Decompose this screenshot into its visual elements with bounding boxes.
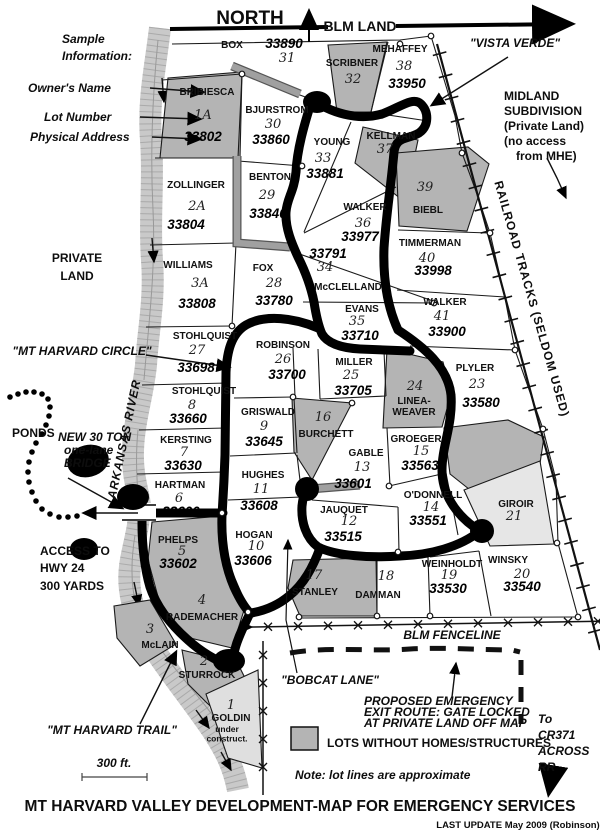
bridge-line3: BRIDGE bbox=[64, 456, 112, 470]
lot-physical-address: 33608 bbox=[240, 498, 278, 513]
lot-owner-name: ZOLLINGER bbox=[167, 180, 226, 191]
lot-number: 32 bbox=[345, 72, 362, 87]
lot-owner-name: BENTON bbox=[249, 172, 291, 183]
blm-land-label: BLM LAND bbox=[323, 18, 396, 34]
lot-number: 26 bbox=[274, 352, 292, 367]
lot-owner-name: BURCHETT bbox=[299, 429, 354, 440]
lot-number: 38 bbox=[396, 59, 413, 74]
scale-label: 300 ft. bbox=[97, 756, 132, 770]
private-land-line1: PRIVATE bbox=[52, 251, 102, 265]
lot-physical-address: 33705 bbox=[334, 383, 372, 398]
access-line1: ACCESS TO bbox=[40, 544, 110, 558]
lot-number: 10 bbox=[248, 539, 265, 554]
lot-physical-address: 33808 bbox=[178, 296, 216, 311]
cr371-line1: To bbox=[538, 712, 552, 726]
midland-line1: MIDLAND bbox=[504, 89, 560, 103]
lot-number: 15 bbox=[413, 444, 430, 459]
lot-number: 30 bbox=[265, 117, 282, 132]
lot-number: 9 bbox=[260, 419, 268, 434]
lot-number: 24 bbox=[406, 379, 424, 394]
lot-corner-marker bbox=[386, 483, 392, 489]
lot-number: 39 bbox=[417, 180, 434, 195]
ponds-label: PONDS bbox=[12, 426, 55, 440]
lot-number: 1A bbox=[194, 108, 212, 123]
lot-owner-name: HUGHES bbox=[242, 470, 285, 481]
lot-physical-address: 33791 bbox=[309, 246, 347, 261]
sample-heading2: Information: bbox=[62, 49, 132, 63]
bobcat-lane-label: "BOBCAT LANE" bbox=[281, 673, 379, 687]
lot-number: 18 bbox=[378, 569, 395, 584]
lot-owner-name: KELLMAN bbox=[367, 131, 416, 142]
lot-corner-marker bbox=[554, 540, 560, 546]
lot-owner-name: MILLER bbox=[335, 357, 373, 368]
lot-corner-marker bbox=[245, 609, 251, 615]
legend-gray-swatch bbox=[291, 727, 318, 750]
lot-number: 33 bbox=[315, 151, 332, 166]
lot-corner-marker bbox=[219, 510, 225, 516]
lot-corner-marker bbox=[540, 426, 546, 432]
mt-harvard-circle-label: "MT HARVARD CIRCLE" bbox=[12, 344, 151, 358]
lot-corner-marker bbox=[487, 230, 493, 236]
lot-owner-name: GABLE bbox=[349, 448, 384, 459]
cr371-line3: ACROSS bbox=[537, 744, 589, 758]
mt-harvard-map: NORTH BLM LAND Sample Information: Owner… bbox=[0, 0, 600, 840]
lot-physical-address: 33698 bbox=[177, 360, 215, 375]
access-line3: 300 YARDS bbox=[40, 579, 104, 593]
lot-physical-address: 33530 bbox=[429, 581, 467, 596]
map-page: NORTH BLM LAND Sample Information: Owner… bbox=[0, 0, 600, 840]
lot-physical-address: 33802 bbox=[184, 129, 222, 144]
map-title: MT HARVARD VALLEY DEVELOPMENT-MAP FOR EM… bbox=[25, 798, 576, 815]
midland-line4: (no access bbox=[504, 134, 566, 148]
lot-number: 35 bbox=[349, 314, 366, 329]
lot-number: 37 bbox=[377, 142, 394, 157]
lot-owner-name: GRISWALD bbox=[241, 407, 295, 418]
lot-physical-address: 33890 bbox=[265, 36, 303, 51]
lot-corner-marker bbox=[349, 400, 355, 406]
lot-number: 13 bbox=[354, 460, 371, 475]
last-update: LAST UPDATE May 2009 (Robinson) bbox=[436, 820, 599, 831]
lot-owner-name: BRIBIESCA bbox=[179, 87, 234, 98]
lot-note: under bbox=[215, 724, 239, 734]
lot-corner-marker bbox=[428, 33, 434, 39]
lot-owner-name: BOX bbox=[221, 40, 243, 51]
lot-owner-name: WEAVER bbox=[392, 407, 436, 418]
blm-fenceline-label: BLM FENCELINE bbox=[403, 628, 501, 642]
lot-owner-name: SCRIBNER bbox=[326, 58, 379, 69]
lot-label-groeger: GROEGER1533563 bbox=[390, 434, 442, 473]
sample-heading: Sample bbox=[62, 32, 105, 46]
lot-corner-marker bbox=[427, 613, 433, 619]
lot-number: 34 bbox=[317, 260, 334, 275]
lot-corner-marker bbox=[395, 549, 401, 555]
lot-physical-address: 33580 bbox=[462, 395, 500, 410]
legend-label: LOTS WITHOUT HOMES/STRUCTURES bbox=[327, 736, 551, 750]
lot-number: 31 bbox=[279, 51, 296, 66]
road-junction-hughes bbox=[295, 477, 319, 501]
bridge-line2: one-lane bbox=[64, 443, 114, 457]
bridge bbox=[84, 503, 156, 521]
lot-number: 16 bbox=[315, 410, 332, 425]
lot-label-williams: WILLIAMS3A33808 bbox=[163, 260, 216, 311]
lot-physical-address: 33900 bbox=[428, 324, 466, 339]
lot-physical-address: 33602 bbox=[159, 556, 197, 571]
lot-owner-name: WILLIAMS bbox=[163, 260, 213, 271]
lot-number: 2A bbox=[187, 199, 206, 214]
lot-physical-address: 33700 bbox=[268, 367, 306, 382]
lot-physical-address: 33645 bbox=[245, 434, 283, 449]
lot-owner-name: BJURSTROM bbox=[245, 105, 308, 116]
pond bbox=[117, 484, 149, 510]
lot-owner-name: McCLELLAND bbox=[314, 282, 382, 293]
lot-corner-marker bbox=[290, 394, 296, 400]
lot-physical-address: 33881 bbox=[306, 166, 344, 181]
lot-number: 11 bbox=[253, 482, 270, 497]
lot-label-benton: BENTON2933840 bbox=[249, 172, 291, 221]
proposed-line3: AT PRIVATE LAND OFF MAP bbox=[363, 716, 528, 730]
lot-label-weinholdt: WEINHOLDT1933530 bbox=[422, 559, 483, 596]
lot-number: 41 bbox=[433, 309, 451, 324]
lot-owner-name: RADEMACHER bbox=[166, 612, 239, 623]
lot-label-young: YOUNG3333881 bbox=[306, 137, 350, 181]
sample-owner-label: Owner's Name bbox=[28, 81, 111, 95]
lot-corner-marker bbox=[575, 614, 581, 620]
north-label: NORTH bbox=[216, 8, 284, 29]
private-land-line2: LAND bbox=[60, 269, 94, 283]
lot-label-griswald: GRISWALD933645 bbox=[241, 407, 295, 449]
lot-label-walker: WALKER4133900 bbox=[423, 297, 467, 339]
lot-owner-name: STURROCK bbox=[179, 670, 236, 681]
lot-owner-name: TIMMERMAN bbox=[399, 238, 461, 249]
lot-label-mcclelland: McCLELLAND3433791 bbox=[309, 246, 382, 293]
lot-physical-address: 33998 bbox=[414, 263, 452, 278]
lot-label-kersting: KERSTING733630 bbox=[160, 435, 212, 473]
lot-physical-address: 33977 bbox=[341, 229, 380, 244]
lot-corner-marker bbox=[239, 71, 245, 77]
lot-number: 12 bbox=[341, 514, 358, 529]
lot-physical-address: 33804 bbox=[167, 217, 205, 232]
lot-physical-address: 33630 bbox=[164, 458, 202, 473]
cr371-line4: RR bbox=[538, 760, 556, 774]
lot-owner-name: STOHLQUIST bbox=[173, 331, 237, 342]
lot-physical-address: 33606 bbox=[234, 553, 272, 568]
lot-number: 27 bbox=[188, 343, 206, 358]
lot-owner-name: ROBINSON bbox=[256, 340, 310, 351]
lot-physical-address: 33563 bbox=[401, 458, 439, 473]
lot-label-winsky: WINSKY2033540 bbox=[488, 555, 541, 594]
lot-number: 28 bbox=[265, 276, 283, 291]
lot-number: 3A bbox=[191, 276, 209, 291]
lot-physical-address: 33540 bbox=[503, 579, 541, 594]
lot-physical-address: 33601 bbox=[334, 476, 372, 491]
lot-owner-name: GOLDIN bbox=[212, 713, 251, 724]
lot-physical-address: 33840 bbox=[249, 206, 287, 221]
lot-corner-marker bbox=[459, 150, 465, 156]
lot-label-hartman: HARTMAN633600 bbox=[155, 480, 206, 519]
lot-corner-marker bbox=[296, 614, 302, 620]
lot-corner-marker bbox=[512, 347, 518, 353]
lot-note: construct. bbox=[206, 734, 247, 744]
note-label: Note: lot lines are approximate bbox=[295, 768, 471, 782]
access-line2: HWY 24 bbox=[40, 561, 85, 575]
lot-number: 2 bbox=[199, 654, 208, 669]
lot-label-miller: MILLER2533705 bbox=[334, 357, 373, 398]
lot-physical-address: 33860 bbox=[252, 132, 290, 147]
cr371-line2: CR371 bbox=[538, 728, 576, 742]
sample-address-label: Physical Address bbox=[30, 130, 130, 144]
lot-owner-name: BIEBL bbox=[413, 205, 443, 216]
lot-label-gable: GABLE1333601 bbox=[334, 448, 384, 491]
mt-harvard-trail-label: "MT HARVARD TRAIL" bbox=[47, 723, 177, 737]
lot-owner-name: HARTMAN bbox=[155, 480, 206, 491]
lot-physical-address: 33780 bbox=[255, 293, 293, 308]
lot-corner-marker bbox=[374, 613, 380, 619]
lot-owner-name: STANLEY bbox=[292, 587, 338, 598]
lot-physical-address: 33660 bbox=[169, 411, 207, 426]
lot-owner-name: WALKER bbox=[343, 202, 387, 213]
lot-number: 25 bbox=[342, 368, 360, 383]
blm-land-arrow bbox=[396, 24, 568, 26]
lot-number: 23 bbox=[468, 377, 486, 392]
proposed-route-leader bbox=[452, 663, 456, 697]
scale-bar bbox=[82, 773, 147, 781]
lot-number: 1 bbox=[227, 698, 235, 713]
lot-owner-name: PLYLER bbox=[456, 363, 495, 374]
lot-label-zollinger: ZOLLINGER2A33804 bbox=[167, 180, 226, 232]
sample-lot-label: Lot Number bbox=[44, 110, 113, 124]
lot-label-hogan: HOGAN1033606 bbox=[234, 530, 272, 568]
lot-number: 21 bbox=[505, 509, 523, 524]
lot-physical-address: 33551 bbox=[409, 513, 447, 528]
lot-owner-name: McLAIN bbox=[141, 640, 178, 651]
lot-label-fox: FOX2833780 bbox=[253, 263, 294, 308]
midland-line5: from MHE) bbox=[516, 149, 577, 163]
lot-number: 29 bbox=[258, 188, 276, 203]
lot-label-jauquet: JAUQUET1233515 bbox=[320, 505, 368, 544]
lot-corner-marker bbox=[229, 323, 235, 329]
lot-number: 4 bbox=[197, 593, 206, 608]
lot-owner-name: YOUNG bbox=[314, 137, 351, 148]
lot-owner-name: LINEA- bbox=[397, 396, 430, 407]
lot-physical-address: 33515 bbox=[324, 529, 362, 544]
lot-label-evans: EVANS3533710 bbox=[341, 304, 379, 343]
lot-owner-name: FOX bbox=[253, 263, 274, 274]
lot-number: 17 bbox=[306, 568, 323, 583]
lot-number: 3 bbox=[146, 622, 154, 637]
lot-owner-name: WALKER bbox=[423, 297, 467, 308]
midland-arrow bbox=[547, 158, 566, 198]
lot-physical-address: 33950 bbox=[388, 76, 426, 91]
lot-owner-name: STOHLQUIST bbox=[172, 386, 236, 397]
midland-line3: (Private Land) bbox=[504, 119, 584, 133]
lot-owner-name: DAMMAN bbox=[355, 590, 401, 601]
midland-line2: SUBDIVISION bbox=[504, 104, 582, 118]
lot-label-box: BOX3133890 bbox=[221, 36, 303, 66]
lot-label-robinson: ROBINSON2633700 bbox=[256, 340, 310, 382]
lot-physical-address: 33710 bbox=[341, 328, 379, 343]
lot-owner-name: WINSKY bbox=[488, 555, 528, 566]
road-junction-giroir bbox=[470, 519, 494, 543]
lot-label-timmerman: TIMMERMAN4033998 bbox=[399, 238, 461, 278]
lot-label-hughes: HUGHES1133608 bbox=[240, 470, 284, 513]
vista-verde-label: "VISTA VERDE" bbox=[470, 36, 560, 50]
lot-corner-marker bbox=[299, 163, 305, 169]
lot-owner-name: MEHAFFEY bbox=[373, 44, 428, 55]
lot-label-plyler: PLYLER2333580 bbox=[456, 363, 501, 410]
lot-physical-address: 33600 bbox=[162, 504, 200, 519]
